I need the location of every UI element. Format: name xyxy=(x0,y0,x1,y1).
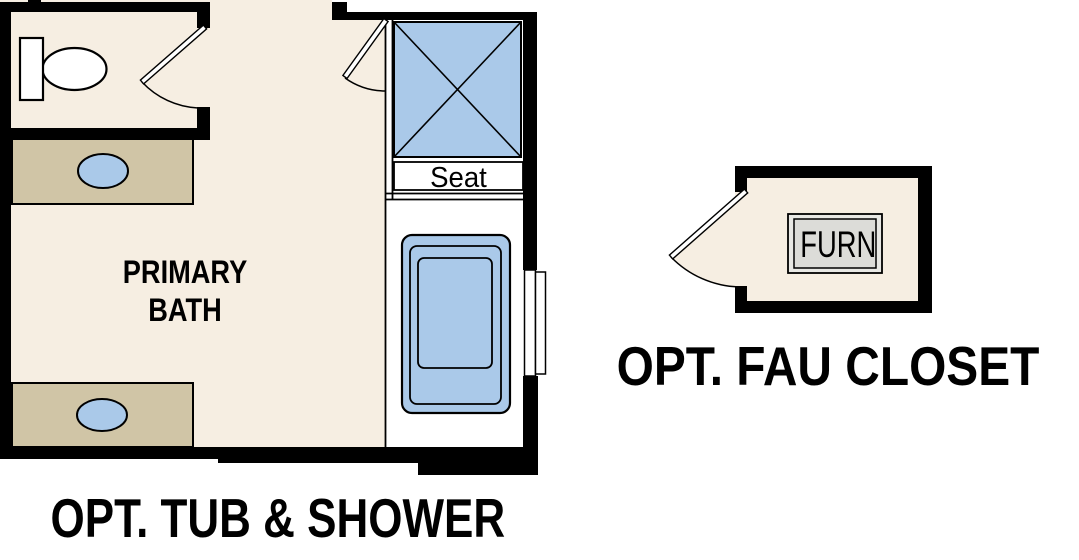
seat-label: Seat xyxy=(397,163,520,193)
sink-lower xyxy=(77,399,127,431)
primary-bath-label: PRIMARY BATH xyxy=(58,253,313,329)
closet-opening-floor xyxy=(735,192,747,286)
furn-label: FURN xyxy=(800,225,870,265)
primary-bath-label-line2: BATH xyxy=(58,291,313,329)
fau-closet-caption: OPT. FAU CLOSET xyxy=(602,337,1054,395)
window xyxy=(525,270,546,376)
closet-wall-stub-bottom xyxy=(735,286,747,313)
toilet-tank xyxy=(20,38,43,100)
closet-wall-stub-top xyxy=(735,166,747,192)
wall-top-right xyxy=(345,12,537,20)
wc-wall-right-upper xyxy=(197,2,210,28)
floor-plan: PRIMARY BATH Seat FURN OPT. TUB & SHOWER… xyxy=(0,0,1079,560)
wall-top-step xyxy=(332,2,347,20)
exterior-gap xyxy=(332,0,540,12)
wall-bottom-3 xyxy=(418,447,538,475)
wall-bottom-2 xyxy=(218,447,418,463)
primary-bath-label-line1: PRIMARY xyxy=(58,253,313,291)
toilet-bowl xyxy=(43,48,107,90)
vanity-lower xyxy=(12,383,193,447)
window-inner-pane xyxy=(525,270,536,376)
wall-top-left xyxy=(0,2,210,12)
window-outer-pane xyxy=(536,272,546,374)
closet-wall-bottom xyxy=(735,301,932,313)
tub-shower-caption: OPT. TUB & SHOWER xyxy=(51,489,455,547)
closet-wall-right xyxy=(918,166,932,313)
wall-left xyxy=(0,2,11,459)
bathtub xyxy=(402,235,510,413)
closet-door-swing-floor xyxy=(671,191,746,287)
wall-right-upper xyxy=(523,12,537,270)
closet-wall-top xyxy=(735,166,932,178)
wall-bottom-1 xyxy=(0,447,218,459)
wall-stub-top xyxy=(28,0,41,3)
sink-upper xyxy=(78,154,128,188)
vanity-upper xyxy=(12,139,193,204)
